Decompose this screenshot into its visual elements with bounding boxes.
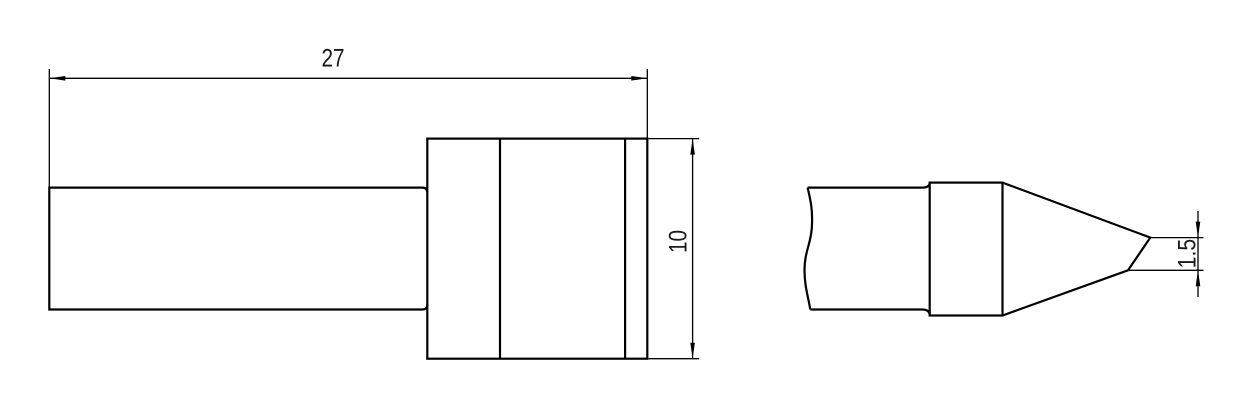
svg-text:10: 10 <box>663 230 691 253</box>
svg-text:1.5: 1.5 <box>1173 239 1201 269</box>
svg-text:27: 27 <box>321 44 344 72</box>
